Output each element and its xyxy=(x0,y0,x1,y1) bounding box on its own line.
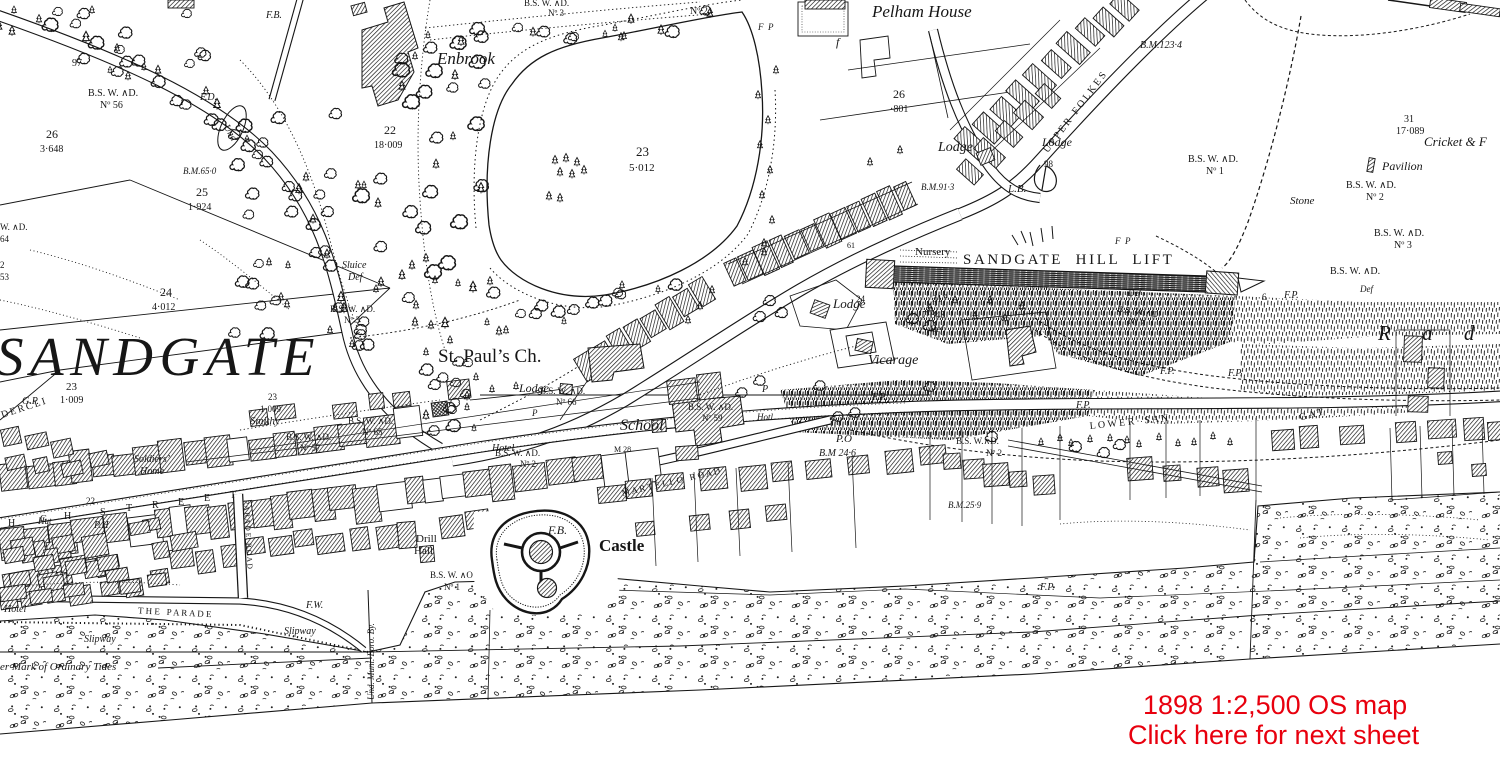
svg-text:Cricket & F: Cricket & F xyxy=(1424,134,1488,149)
svg-text:B.S. W. ∧D.: B.S. W. ∧D. xyxy=(1330,266,1380,277)
svg-text:Nº 3: Nº 3 xyxy=(1394,240,1412,251)
svg-text:61: 61 xyxy=(847,241,855,250)
svg-text:W. ∧D.: W. ∧D. xyxy=(0,222,28,232)
svg-text:Lodge: Lodge xyxy=(937,140,973,155)
svg-text:·801: ·801 xyxy=(890,104,908,115)
svg-text:a: a xyxy=(944,291,948,300)
svg-text:Hotl: Hotl xyxy=(756,412,774,422)
svg-text:T: T xyxy=(126,503,132,514)
svg-text:R: R xyxy=(152,500,159,511)
svg-text:Nº 57: Nº 57 xyxy=(300,443,321,453)
svg-text:B.M.123·4: B.M.123·4 xyxy=(1140,40,1182,51)
svg-text:F.P.: F.P. xyxy=(1283,290,1299,301)
svg-text:B.S. W. ∧D.: B.S. W. ∧D. xyxy=(330,304,375,314)
svg-text:Castle: Castle xyxy=(599,536,645,555)
svg-text:B.S. W. ∧D.: B.S. W. ∧D. xyxy=(1374,228,1424,239)
svg-text:3·648: 3·648 xyxy=(40,144,63,155)
svg-text:Pelham House: Pelham House xyxy=(871,2,972,21)
svg-text:F P: F P xyxy=(757,22,774,32)
svg-text:S: S xyxy=(100,507,106,518)
svg-text:Hotel: Hotel xyxy=(491,443,514,454)
svg-text:St. Paul’s Ch.: St. Paul’s Ch. xyxy=(438,346,541,367)
svg-text:Enbrook: Enbrook xyxy=(436,49,495,68)
svg-text:B.S. W. ∧D.: B.S. W. ∧D. xyxy=(540,386,585,396)
svg-text:Slipway: Slipway xyxy=(84,634,116,645)
svg-text:SANDGATE HILL LIFT: SANDGATE HILL LIFT xyxy=(963,252,1174,268)
svg-text:B.S. W. ∧D.: B.S. W. ∧D. xyxy=(88,88,138,99)
svg-text:Nº 2: Nº 2 xyxy=(986,448,1002,458)
svg-text:Def.: Def. xyxy=(929,324,945,334)
svg-text:B.M.65·0: B.M.65·0 xyxy=(183,166,217,176)
svg-text:F.P.: F.P. xyxy=(1075,400,1091,411)
svg-text:26: 26 xyxy=(893,87,905,101)
svg-text:64: 64 xyxy=(0,234,10,244)
svg-text:Nº 3: Nº 3 xyxy=(548,8,565,18)
svg-text:Nº 1: Nº 1 xyxy=(444,582,460,592)
svg-text:23: 23 xyxy=(66,381,78,393)
svg-text:B.S. W. ∧D.: B.S. W. ∧D. xyxy=(286,432,331,442)
svg-text:Nº 66: Nº 66 xyxy=(556,397,577,407)
svg-text:F.P.: F.P. xyxy=(1227,368,1243,379)
svg-text:97: 97 xyxy=(72,58,82,69)
svg-text:B.S. W.∧D.: B.S. W.∧D. xyxy=(956,436,999,446)
svg-text:L.B.: L.B. xyxy=(1007,183,1026,195)
svg-text:Nº 65: Nº 65 xyxy=(362,427,383,437)
svg-text:er Mark of Ordinary Tides: er Mark of Ordinary Tides xyxy=(0,661,116,673)
svg-text:98: 98 xyxy=(1044,159,1054,169)
svg-text:Nº 2: Nº 2 xyxy=(690,6,708,17)
svg-text:5·012: 5·012 xyxy=(629,162,655,174)
svg-text:Nº 56: Nº 56 xyxy=(100,100,123,111)
svg-text:F.P.: F.P. xyxy=(1039,582,1055,593)
svg-text:School: School xyxy=(620,417,664,434)
svg-text:B.S. W. ∧D.: B.S. W. ∧D. xyxy=(524,0,569,8)
svg-text:B.S. W. ∧D.: B.S. W. ∧D. xyxy=(688,402,733,412)
svg-text:22: 22 xyxy=(384,123,396,137)
svg-text:Sluice: Sluice xyxy=(342,260,367,271)
svg-text:24: 24 xyxy=(856,294,866,304)
svg-text:H: H xyxy=(64,511,71,522)
svg-text:F.B.: F.B. xyxy=(547,523,567,537)
svg-text:4·012: 4·012 xyxy=(152,302,175,313)
svg-text:Hall: Hall xyxy=(414,545,433,557)
svg-text:Nº 2: Nº 2 xyxy=(1366,192,1384,203)
svg-text:B.M.25·9: B.M.25·9 xyxy=(948,500,982,510)
svg-text:Hotel: Hotel xyxy=(3,604,26,615)
svg-text:B.S. W. ∧D.: B.S. W. ∧D. xyxy=(1188,154,1238,165)
svg-text:53: 53 xyxy=(0,272,10,282)
svg-text:B.S. W. ∧O: B.S. W. ∧O xyxy=(430,570,473,580)
svg-text:1·924: 1·924 xyxy=(188,202,211,213)
svg-text:E: E xyxy=(204,493,210,504)
svg-text:22: 22 xyxy=(86,496,95,506)
svg-text:Nº 3: Nº 3 xyxy=(344,315,361,325)
svg-text:B.S. W. ∧D.: B.S. W. ∧D. xyxy=(348,416,393,426)
svg-text:23: 23 xyxy=(636,144,649,159)
svg-text:Hut: Hut xyxy=(37,516,52,526)
svg-text:31: 31 xyxy=(932,294,942,305)
svg-text:24: 24 xyxy=(160,285,172,299)
svg-text:F.P.: F.P. xyxy=(1159,366,1175,377)
svg-text:Nº 59: Nº 59 xyxy=(702,413,723,423)
svg-text:Slipway: Slipway xyxy=(284,626,316,637)
svg-text:1898 1:2,500 OS map: 1898 1:2,500 OS map xyxy=(1143,690,1407,720)
svg-text:E: E xyxy=(178,497,184,508)
svg-text:F.P.: F.P. xyxy=(871,392,887,403)
svg-text:26: 26 xyxy=(46,127,58,141)
svg-text:Nursery: Nursery xyxy=(915,246,951,258)
svg-text:18·009: 18·009 xyxy=(374,140,402,151)
svg-text:F.D.: F.D. xyxy=(199,92,217,103)
svg-text:P.H: P.H xyxy=(93,520,109,531)
svg-text:G.P.: G.P. xyxy=(22,396,39,407)
svg-text:31: 31 xyxy=(1404,114,1414,125)
svg-text:Home: Home xyxy=(139,466,164,477)
svg-text:Nº 2: Nº 2 xyxy=(520,459,536,469)
svg-text:Smithy: Smithy xyxy=(250,415,280,427)
svg-text:Und. Munl. Boro. By.: Und. Munl. Boro. By. xyxy=(366,623,376,700)
svg-text:6: 6 xyxy=(1262,292,1267,302)
svg-text:Nº 1: Nº 1 xyxy=(1206,166,1224,177)
svg-text:1·009: 1·009 xyxy=(260,404,281,414)
svg-text:1·009: 1·009 xyxy=(60,395,83,406)
svg-text:B.M 24·6: B.M 24·6 xyxy=(819,448,856,459)
svg-text:Def: Def xyxy=(347,272,364,283)
svg-text:Vicarage: Vicarage xyxy=(868,353,918,368)
svg-text:Def: Def xyxy=(1127,288,1142,298)
svg-text:25: 25 xyxy=(196,185,208,199)
svg-text:M 28: M 28 xyxy=(614,445,631,454)
svg-text:Click here for next sheet: Click here for next sheet xyxy=(1128,720,1420,750)
svg-text:F P: F P xyxy=(1114,236,1131,246)
svg-text:2: 2 xyxy=(0,260,5,270)
svg-text:T: T xyxy=(230,490,236,501)
svg-text:Drill: Drill xyxy=(416,533,437,545)
svg-text:H: H xyxy=(8,518,15,529)
svg-text:Stone: Stone xyxy=(1290,195,1315,207)
svg-text:Def: Def xyxy=(1359,284,1374,294)
svg-text:P: P xyxy=(531,408,538,418)
svg-text:Soldiers’: Soldiers’ xyxy=(134,454,171,465)
svg-text:17·089: 17·089 xyxy=(1396,126,1424,137)
svg-text:SANDGATE: SANDGATE xyxy=(0,326,321,387)
svg-text:B.M.91·3: B.M.91·3 xyxy=(921,182,955,192)
svg-text:P.O: P.O xyxy=(835,433,852,445)
svg-text:B.S. W. ∧D.: B.S. W. ∧D. xyxy=(1346,180,1396,191)
svg-text:R a d n: R a d n xyxy=(1377,321,1500,345)
svg-text:F.B.: F.B. xyxy=(265,10,282,21)
svg-text:7·848: 7·848 xyxy=(922,310,945,321)
svg-text:Pavilion: Pavilion xyxy=(1381,159,1423,173)
svg-text:P: P xyxy=(761,384,768,395)
svg-text:Lodge: Lodge xyxy=(1041,135,1073,149)
svg-text:F.W.: F.W. xyxy=(305,600,323,611)
svg-text:23: 23 xyxy=(268,392,278,402)
